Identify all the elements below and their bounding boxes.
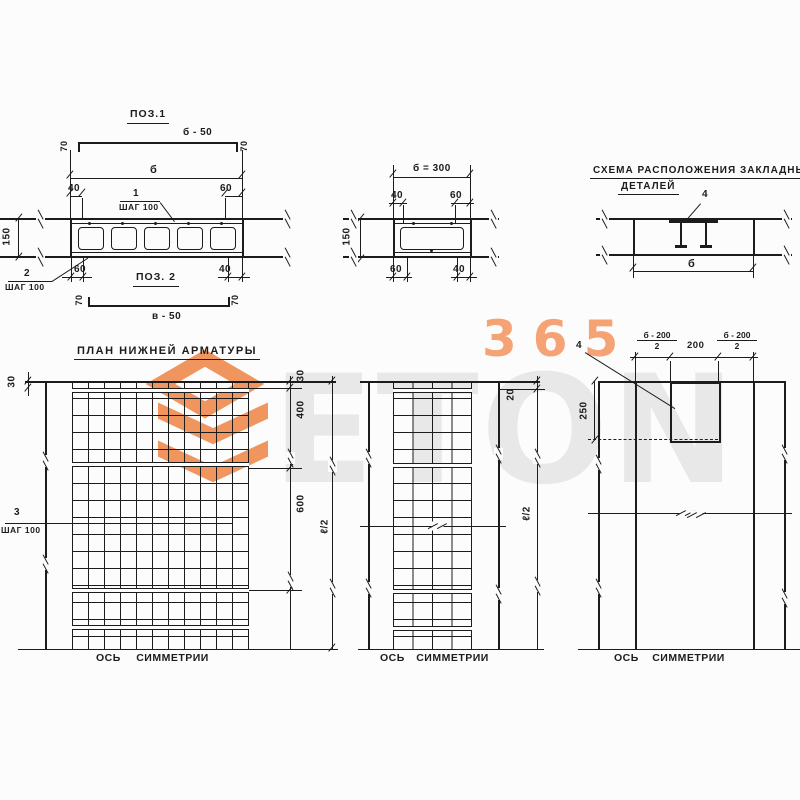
plan2-symmetry-axis-line: [358, 649, 544, 650]
ext-line: [670, 361, 671, 382]
ext-line: [407, 256, 408, 282]
ext-line: [753, 352, 754, 382]
callout-3-step: ШАГ 100: [1, 526, 41, 535]
ext-line: [393, 256, 394, 282]
ext-line: [455, 205, 456, 223]
break-mark: [36, 213, 45, 225]
rebar-dot: [430, 249, 433, 252]
plan2-axis-label: ОСЬ СИММЕТРИИ: [380, 653, 489, 665]
ext-line: [225, 198, 226, 218]
break-mark: [349, 251, 358, 263]
poz1-dim-40-label: 40: [68, 183, 80, 194]
break-mark: [600, 213, 609, 225]
ext-line: [249, 388, 302, 389]
rebar-dot: [412, 222, 415, 225]
break-mark: [286, 452, 295, 464]
plan2-mesh-grid: [393, 382, 472, 650]
mesh-double-bar: [393, 388, 472, 393]
break-mark: [283, 251, 292, 263]
poz2-hook-left: [88, 297, 90, 305]
plan3-frac-left-top: б - 200: [637, 330, 677, 341]
poz1-bar: [78, 142, 238, 144]
section2-bot40-label: 40: [453, 264, 465, 275]
break-mark: [780, 448, 789, 460]
ext-line: [82, 198, 83, 218]
mesh-double-bar: [72, 388, 249, 393]
break-mark: [364, 582, 373, 594]
callout-2-number: 2: [24, 268, 30, 279]
poz1-hook-dim-left: 70: [60, 135, 70, 157]
stirrup: [177, 227, 203, 250]
section2-inner-top: [393, 223, 470, 224]
break-mark: [691, 511, 703, 520]
anchor-stud-foot: [675, 245, 687, 248]
ext-line: [242, 256, 243, 282]
rebar-dot: [220, 222, 223, 225]
anchor-stud: [705, 222, 707, 246]
break-mark: [36, 251, 45, 263]
break-mark: [489, 213, 498, 225]
scheme-bottom-edge: [596, 254, 792, 256]
ext-line: [249, 590, 302, 591]
plan1-inner-dim-line: [290, 376, 291, 650]
break-mark: [364, 452, 373, 464]
break-mark: [489, 251, 498, 263]
break-mark: [494, 448, 503, 460]
plan2-dim20-label: 20: [506, 384, 517, 406]
poz2-length-label: в - 50: [152, 311, 181, 322]
break-mark: [533, 580, 542, 592]
mesh-double-bar: [72, 625, 249, 630]
section1-beam-right: [242, 218, 244, 258]
ext-line: [470, 256, 471, 282]
section2-top-edge: [343, 218, 499, 220]
mesh-double-bar: [393, 589, 472, 594]
mesh-double-bar: [72, 588, 249, 593]
break-mark: [780, 592, 789, 604]
plan2-right-edge: [498, 381, 500, 650]
plan1-dim30-right-label: 30: [296, 365, 307, 387]
poz1-hook-right: [236, 142, 238, 152]
break-mark: [533, 452, 542, 464]
drawing: ПОЗ.1 б - 50 70 70 б 40 60 1 ШАГ 100 150…: [0, 0, 800, 800]
section2-bot60-label: 60: [390, 264, 402, 275]
ext-line: [470, 165, 471, 218]
mesh-double-bar: [393, 463, 472, 468]
scheme-panel-left: [633, 218, 635, 254]
plan3-left-edge: [598, 381, 600, 650]
ext-line: [457, 256, 458, 282]
stirrup: [210, 227, 236, 250]
rebar-dot: [154, 222, 157, 225]
section2-inner-bottom: [393, 252, 470, 253]
anchor-stud: [680, 222, 682, 246]
plan3-inner-right-line: [753, 381, 755, 650]
rebar-dot: [121, 222, 124, 225]
callout-3-leader: [5, 523, 233, 524]
stirrup: [78, 227, 104, 250]
ext-line: [718, 361, 719, 382]
rebar-dot: [88, 222, 91, 225]
plan1-symmetry-axis-line: [18, 649, 338, 650]
section1-inner-bottom: [70, 252, 242, 253]
scheme-title-line2: ДЕТАЛЕЙ: [618, 181, 679, 195]
ext-line: [403, 205, 404, 223]
section1-dim-40-line: [218, 277, 250, 278]
poz2-bar: [88, 305, 230, 307]
plan3-dim250-label: 250: [579, 398, 590, 424]
plan3-top-dim-line: [630, 357, 758, 358]
plan1-title: ПЛАН НИЖНЕЙ АРМАТУРЫ: [74, 345, 260, 360]
break-mark: [349, 213, 358, 225]
embedded-plate: [669, 218, 718, 223]
plan2-halflength-label: ℓ/2: [522, 502, 533, 526]
anchor-stud-foot: [700, 245, 712, 248]
plan1-dim400-label: 400: [296, 399, 307, 421]
plan3-dim250-line: [594, 381, 595, 439]
poz1-dim-60-line: [225, 196, 242, 197]
plan1-axis-label: ОСЬ СИММЕТРИИ: [96, 653, 209, 665]
plan1-dim600-label: 600: [296, 493, 307, 515]
section2-width-dim-line: [393, 177, 470, 178]
poz1-dim-overall-line: [70, 178, 242, 179]
poz1-hook-left: [78, 142, 80, 152]
poz1-title: ПОЗ.1: [127, 109, 169, 124]
plan3-frac-left: б - 200 2: [637, 330, 677, 351]
poz2-title: ПОЗ. 2: [133, 272, 179, 287]
plan3-embedded-plate: [670, 382, 721, 443]
plan3-axis-label: ОСЬ СИММЕТРИИ: [614, 653, 725, 665]
break-mark: [494, 588, 503, 600]
section1-height-label: 150: [2, 226, 13, 248]
callout-1-step: ШАГ 100: [119, 203, 159, 212]
plan3-inner-left-line: [635, 381, 637, 650]
break-mark: [328, 460, 337, 472]
plan3-right-edge: [784, 381, 786, 650]
section2-width-label: б = 300: [413, 163, 451, 174]
callout-3-number: 3: [14, 507, 20, 518]
scheme-panel-right: [753, 218, 755, 254]
plan1-dim30-left-label: 30: [7, 371, 18, 393]
plan3-frac-right: б - 200 2: [717, 330, 757, 351]
plan3-250-extent-line: [588, 439, 718, 440]
break-mark: [41, 455, 50, 467]
plan2-left-edge: [368, 381, 370, 650]
poz1-length-label: б - 50: [183, 127, 212, 138]
callout-1-number: 1: [133, 188, 139, 199]
break-mark: [594, 458, 603, 470]
poz2-hook-dim-left: 70: [75, 289, 85, 311]
poz1-dim-60-label: 60: [220, 183, 232, 194]
section1-dim-60-line: [62, 277, 92, 278]
ext-line: [242, 150, 243, 218]
ext-line: [249, 468, 302, 469]
plan1-left-edge: [45, 381, 47, 650]
plan3-dim200-label: 200: [687, 341, 704, 351]
break-mark: [283, 213, 292, 225]
stirrup: [400, 227, 464, 250]
break-mark: [594, 582, 603, 594]
break-mark: [782, 249, 791, 261]
poz1-dim-overall-label: б: [150, 164, 157, 176]
break-mark: [286, 575, 295, 587]
plan3-frac-left-bot: 2: [637, 341, 677, 351]
scheme-dim-label: б: [688, 258, 695, 270]
plan3-frac-right-top: б - 200: [717, 330, 757, 341]
ext-line: [635, 352, 636, 382]
ext-line: [393, 165, 394, 218]
break-mark: [782, 213, 791, 225]
break-mark: [328, 582, 337, 594]
plan2-dim-line: [537, 376, 538, 650]
plan3-callout-4: 4: [576, 340, 582, 351]
section2-beam-right: [470, 218, 472, 258]
scheme-title-line1: СХЕМА РАСПОЛОЖЕНИЯ ЗАКЛАДНЫХ: [590, 165, 800, 179]
rebar-dot: [450, 222, 453, 225]
plan3-frac-right-bot: 2: [717, 341, 757, 351]
section1-height-dim-line: [18, 218, 19, 256]
rebar-dot: [187, 222, 190, 225]
break-mark: [41, 558, 50, 570]
dim-tick: [328, 643, 335, 652]
ext-line: [228, 256, 229, 282]
scheme-dim-line: [633, 271, 753, 272]
mesh-double-bar: [72, 462, 249, 467]
plan3-symmetry-axis-line: [578, 649, 800, 650]
section2-bottom-edge: [343, 256, 499, 258]
break-mark: [432, 522, 444, 531]
stirrup: [144, 227, 170, 250]
plan1-halflength-label: ℓ/2: [320, 515, 331, 539]
plan1-outer-dim-line: [332, 376, 333, 650]
poz2-hook-dim-right: 70: [231, 289, 241, 311]
callout-2-step: ШАГ 100: [5, 283, 45, 292]
plan1-mesh-grid: [72, 382, 249, 650]
section2-top60-label: 60: [450, 190, 462, 201]
scheme-callout-4: 4: [702, 189, 708, 200]
section2-height-dim-line: [360, 218, 361, 258]
poz1-dim-40-line: [70, 196, 82, 197]
section2-height-label: 150: [342, 226, 353, 248]
stirrup: [111, 227, 137, 250]
break-mark: [600, 249, 609, 261]
section1-dim-40-label: 40: [219, 264, 231, 275]
mesh-double-bar: [393, 626, 472, 631]
